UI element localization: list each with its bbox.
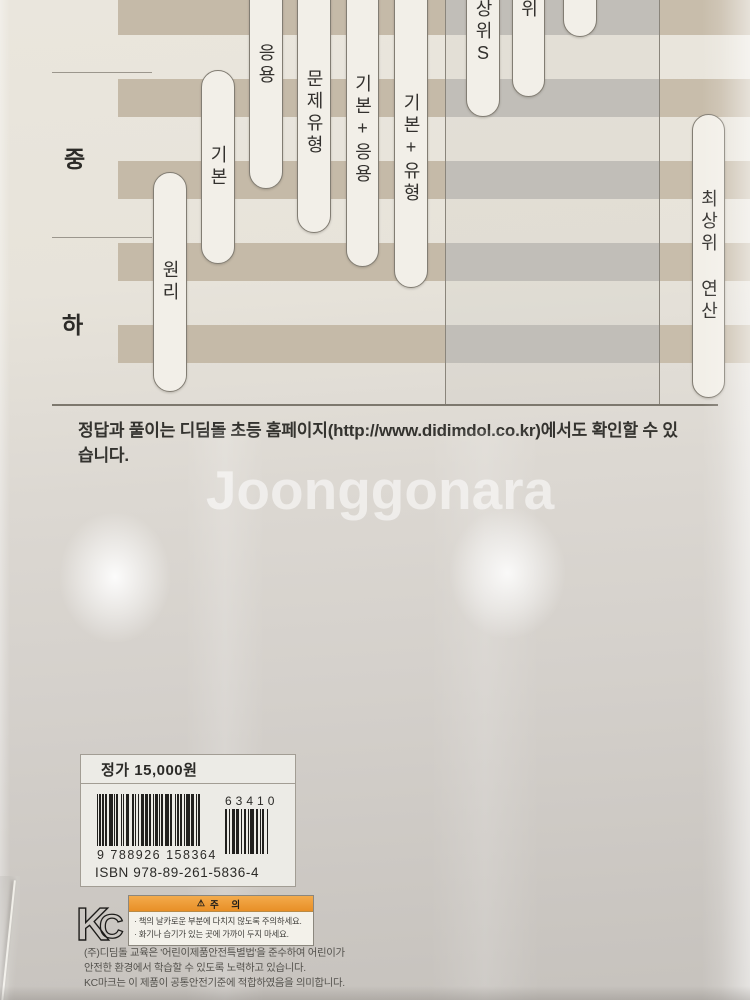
pill-label: 기본+응용 <box>354 74 372 186</box>
warning-body: 책의 날카로운 부분에 다치지 않도록 주의하세요. 화기나 습기가 있는 곳에… <box>129 912 313 945</box>
warning-item: 화기나 습기가 있는 곳에 가까이 두지 마세요. <box>134 928 308 941</box>
kc-certification-icon: K C <box>76 897 126 949</box>
level-pill: 원리 <box>153 172 187 392</box>
addon-barcode: 63410 <box>225 794 283 854</box>
row-divider-top <box>52 72 152 73</box>
safety-notice: (주)디딤돌 교육은 '어린이제품안전특별법'을 준수하여 어린이가 안전한 환… <box>84 946 344 991</box>
pill-label: 최상위 연산 <box>700 189 718 323</box>
pill-label: 원리 <box>161 260 179 304</box>
joonggonara-watermark: Joonggonara <box>185 458 575 522</box>
level-pill: 최상위 연산 <box>692 114 725 398</box>
pill-label: 응용 <box>257 43 275 87</box>
notice-line: KC마크는 이 제품이 공통안전기준에 적합하였음을 의미합니다. <box>84 976 344 991</box>
level-pill: 상위S <box>466 0 500 117</box>
level-pill <box>563 0 597 37</box>
row-label-low: 하 <box>62 306 84 340</box>
row-label-mid: 중 <box>64 140 86 174</box>
level-pill: 기본+응용 <box>346 0 379 267</box>
book-cover-edge <box>0 880 16 1000</box>
book-back-cover-photo: 중 하 원리기본응용문제유형기본+응용기본+유형상위S위최상위 연산 정답과 풀… <box>0 0 750 1000</box>
level-pill: 문제유형 <box>297 0 331 233</box>
level-pill: 기본 <box>201 70 235 264</box>
chart-baseline <box>52 404 718 406</box>
notice-line: (주)디딤돌 교육은 '어린이제품안전특별법'을 준수하여 어린이가 <box>84 946 344 961</box>
ean13-digits: 9 788926 158364 <box>97 848 215 862</box>
notice-line: 안전한 환경에서 학습할 수 있도록 노력하고 있습니다. <box>84 961 344 976</box>
safety-warning-box: ⚠ 주 의 책의 날카로운 부분에 다치지 않도록 주의하세요. 화기나 습기가… <box>128 895 314 946</box>
left-edge-light <box>0 0 10 1000</box>
pill-label: 기본+유형 <box>402 93 420 205</box>
level-pill: 응용 <box>249 0 283 189</box>
pill-label: 상위S <box>474 0 492 67</box>
pill-label: 위 <box>520 0 538 21</box>
addon-code: 63410 <box>225 794 283 808</box>
level-pill: 위 <box>512 0 545 97</box>
addon-bars <box>225 809 283 854</box>
row-divider-bottom <box>52 237 152 238</box>
pill-label: 기본 <box>209 145 227 189</box>
ean13-barcode: 9 788926 158364 <box>97 794 215 862</box>
isbn-number: ISBN 978-89-261-5836-4 <box>81 865 295 880</box>
glare-spot <box>60 512 170 642</box>
price-label: 정가 15,000원 <box>81 755 295 784</box>
ean13-bars <box>97 794 215 846</box>
warning-item: 책의 날카로운 부분에 다치지 않도록 주의하세요. <box>134 915 308 928</box>
barcode-area: 9 788926 158364 63410 <box>81 784 295 864</box>
warning-triangle-icon: ⚠ <box>197 898 205 909</box>
warning-header: ⚠ 주 의 <box>129 896 313 912</box>
level-pill: 기본+유형 <box>394 0 428 288</box>
svg-text:C: C <box>99 908 124 946</box>
warning-title: 주 의 <box>210 897 245 911</box>
pill-label: 문제유형 <box>305 69 323 157</box>
price-barcode-box: 정가 15,000원 9 788926 158364 63410 ISBN 97… <box>80 754 296 887</box>
glare-spot <box>450 508 565 638</box>
